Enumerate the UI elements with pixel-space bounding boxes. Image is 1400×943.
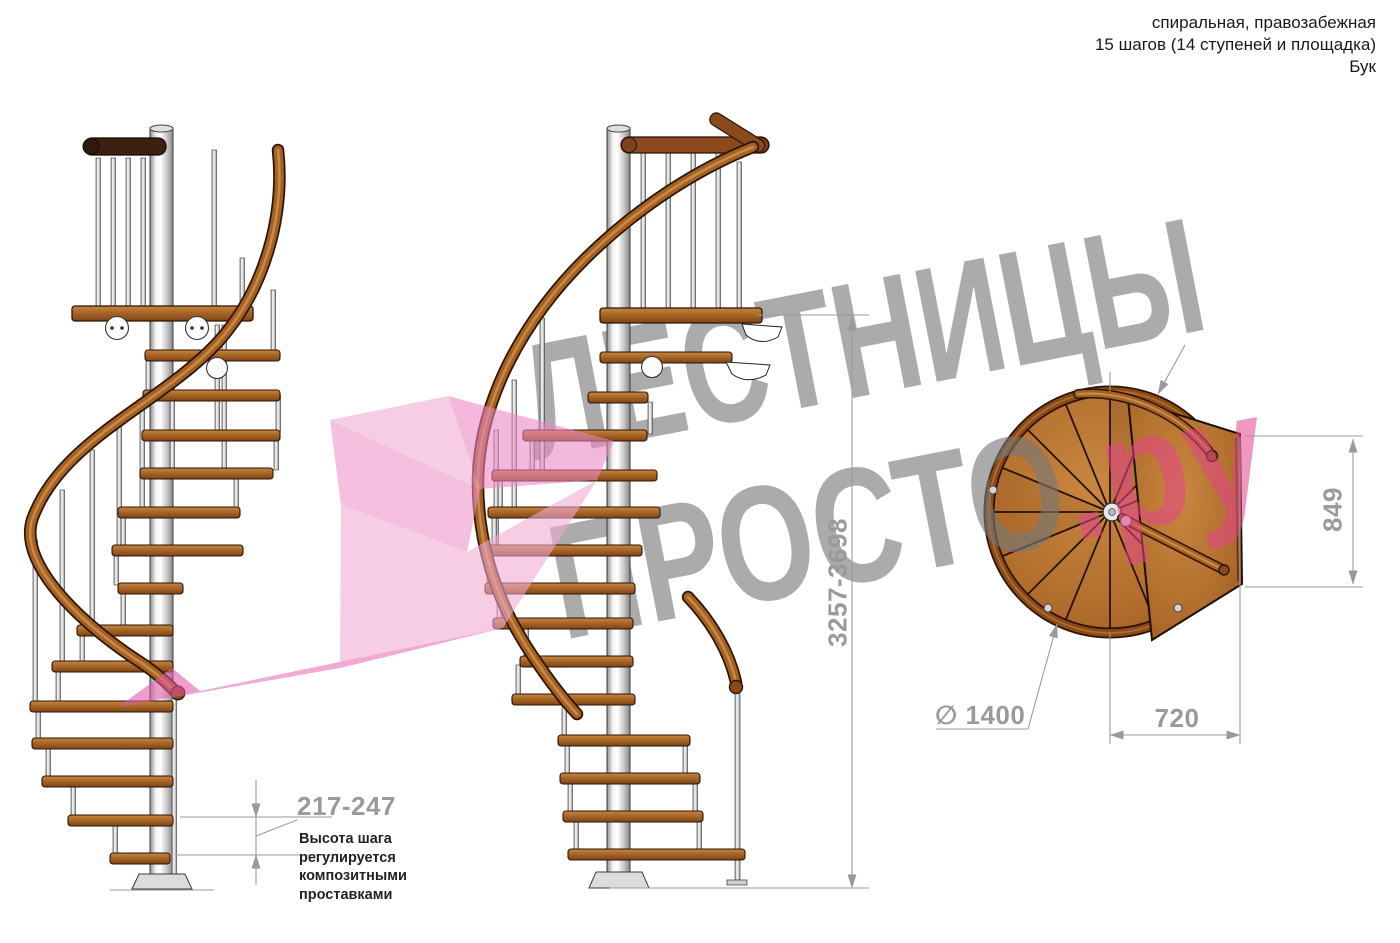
handrail-end-cap [730,681,743,694]
total-height-label: 3257-3698 [823,463,854,703]
newel-rail-cap [1219,565,1229,575]
step-connector-disc [642,357,663,378]
step-height-leader [256,820,297,836]
watermark-suffix: .ру [1045,357,1281,576]
staircase-drawing: ЛЕСТНИЦЫ ПРОСТО .ру [0,0,1400,943]
upper-landing [600,308,762,323]
platform-width-label: 720 [1146,703,1208,734]
step-height-label: 217-247 [297,791,396,822]
stair-type: спиральная, правозабежная [1095,12,1376,34]
base-flange [589,872,649,888]
drawing-canvas: ЛЕСТНИЦЫ ПРОСТО .ру [0,0,1400,943]
diameter-leader [1028,624,1057,729]
step-count: 15 шагов (14 ступеней и площадка) [1095,34,1376,56]
step-height-note: Высота шага регулируется композитными пр… [299,830,407,904]
upper-landing [72,306,253,321]
diameter-label: ∅ 1400 [935,700,1025,731]
material: Бук [1095,56,1376,78]
base-flange [132,874,192,889]
title-block: спиральная, правозабежная 15 шагов (14 с… [1095,12,1376,78]
platform-depth-label: 849 [1318,440,1349,580]
side-view-left [30,125,281,890]
